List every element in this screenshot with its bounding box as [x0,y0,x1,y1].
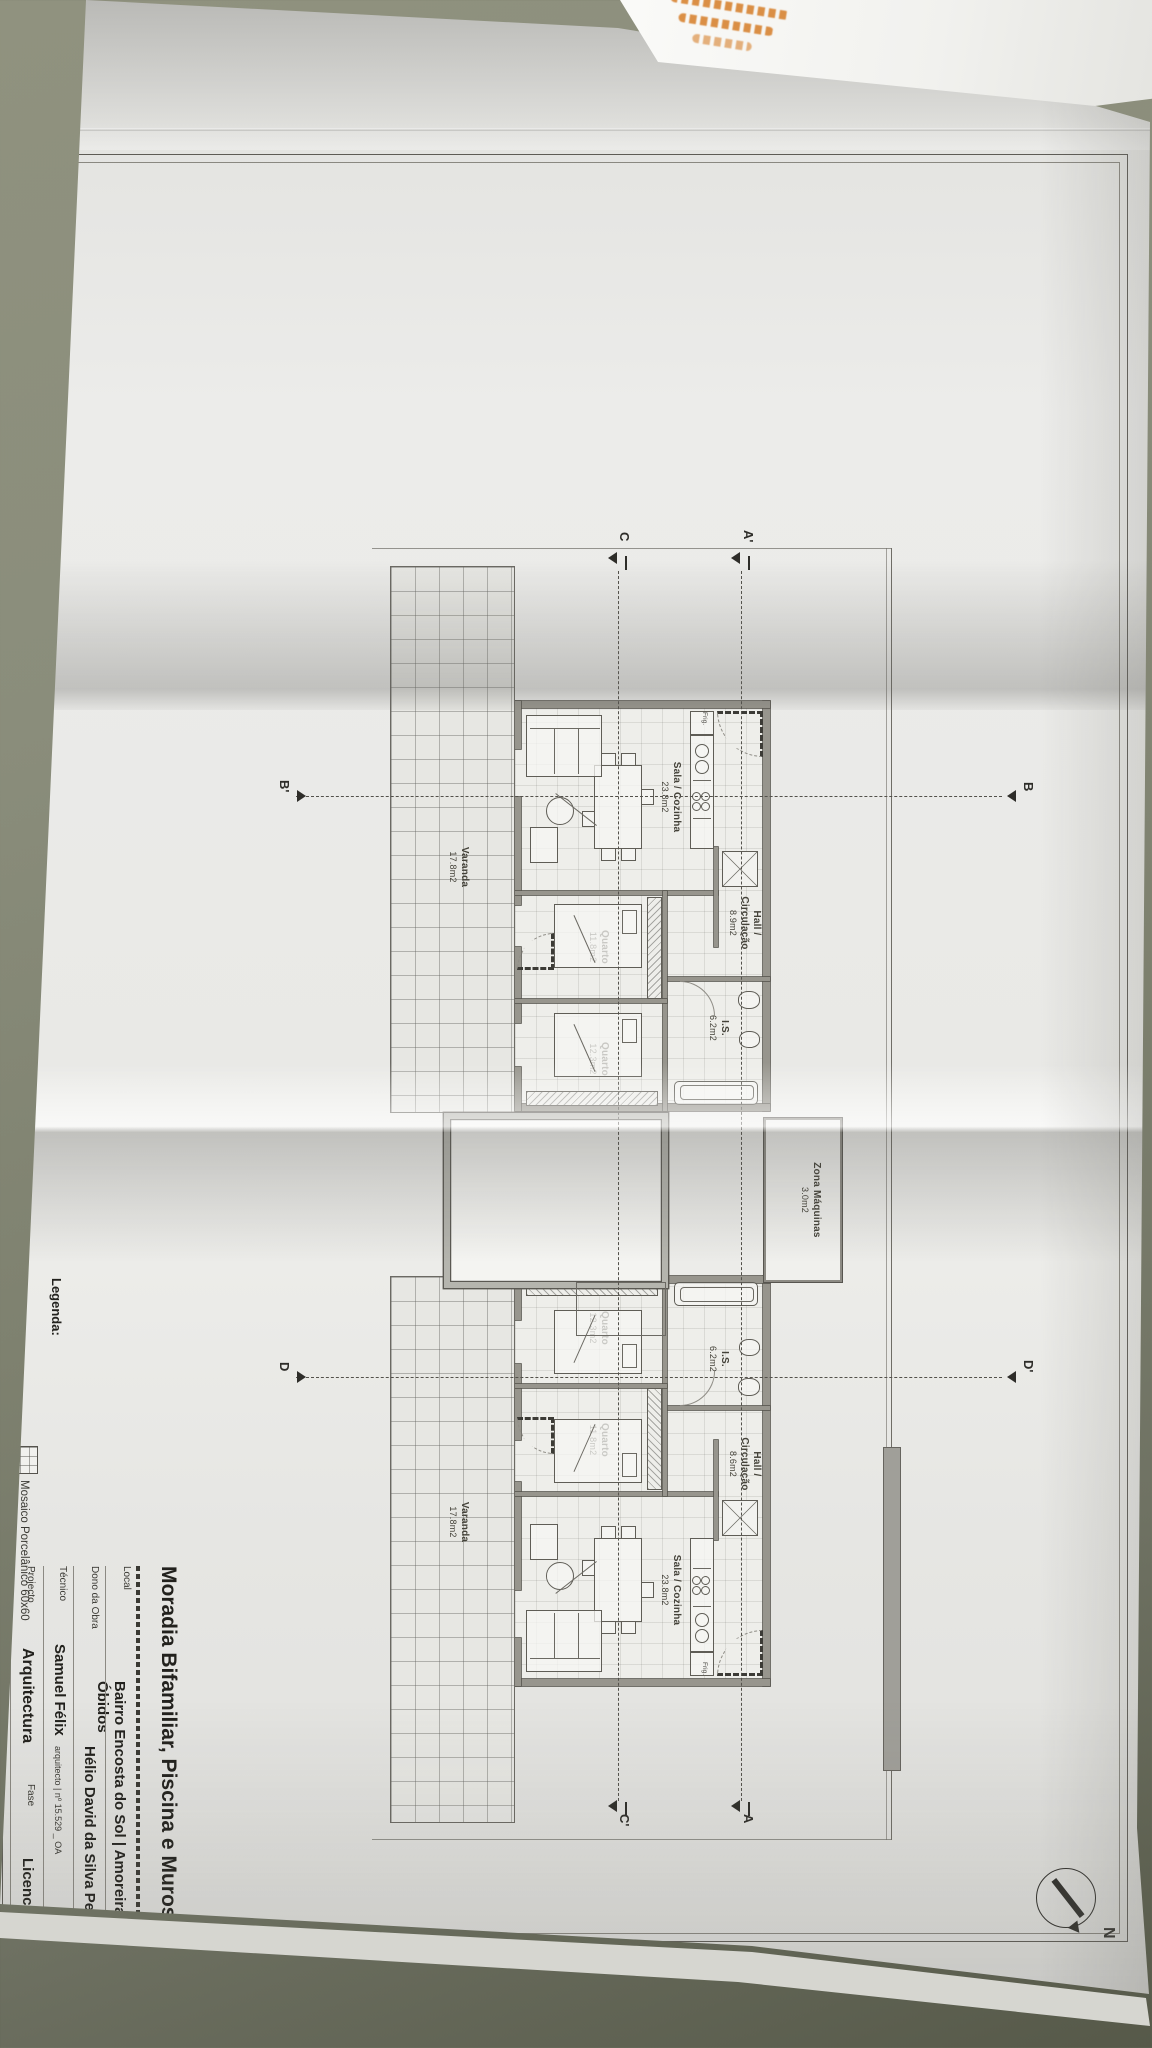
section-marker-d-end: D [277,1362,292,1371]
fridge-label: Frig. [701,1662,708,1675]
round-chair [546,1562,574,1590]
wardrobe [647,897,662,999]
room-label-hall: Hall / Circulação 8.9m2 [728,877,762,969]
hall-area: 8.9m2 [728,877,739,969]
project-title: Moradia Bifamiliar, Piscina e Muros [156,1566,180,2026]
north-arrow: N [1036,1868,1096,1928]
varanda-area: 17.8m2 [448,1477,459,1567]
north-label: N [1099,1927,1117,1939]
hall-name-1: Hall / [751,910,762,935]
sofa [526,1610,602,1672]
sala-name: Sala / Cozinha [671,1555,682,1626]
section-line-d [296,1377,1002,1378]
dwelling-unit-right: Hall / Circulação 8.6m2 I.S. 6.2m2 Sala … [515,1276,770,1686]
folded-drawing-sheet: Hall / Circulação 8.9m2 I.S. 6.2m2 Sala … [0,0,1152,2048]
section-marker-b-start: B [1021,782,1036,791]
orange-handwriting [678,13,774,37]
zona-area: 3.0m2 [800,1120,811,1280]
section-marker-c-start: C [617,532,632,541]
room-label-zona: Zona Máquinas 3.0m2 [800,1120,822,1280]
room-label-varanda: Varanda 17.8m2 [448,822,470,912]
hall-closet [722,1500,758,1536]
bed [554,1013,642,1077]
quarto1-door-arc [517,933,554,970]
room-label-varanda: Varanda 17.8m2 [448,1477,470,1567]
sofa [526,715,602,777]
varanda-left: Varanda 17.8m2 [390,566,515,1113]
section-line-b [296,796,1002,797]
muro-wall [884,1448,900,1770]
dwelling-unit-left: Hall / Circulação 8.9m2 I.S. 6.2m2 Sala … [515,701,770,1111]
legend-tile-swatch [10,1446,38,1474]
zona-name: Zona Máquinas [811,1162,822,1237]
technician-value: Samuel Félix [51,1644,68,1736]
zona-maquinas-room: Zona Máquinas 3.0m2 [764,1118,842,1282]
tv-unit [530,827,558,863]
section-line-c [618,571,619,1801]
quarto1-door-arc [517,1417,554,1454]
section-marker-a-start: A' [741,530,756,542]
site-boundary-right [372,1839,892,1840]
section-marker-d-start: D' [1021,1360,1036,1372]
chair [601,848,616,861]
round-chair [546,797,574,825]
hall-area: 8.6m2 [728,1418,739,1510]
kitchen-counter [690,1538,714,1652]
room-label-sala: Sala / Cozinha 23.8m2 [660,1542,682,1638]
is-door-arc [680,981,715,1016]
sala-area: 23.8m2 [660,1542,671,1638]
entrance-door-arc [717,1630,763,1676]
chair [621,753,636,766]
chair [641,1582,654,1598]
section-marker-b-end: B' [277,780,292,792]
bed [554,904,642,968]
phase-label: Fase [25,1784,36,1806]
room-label-sala: Sala / Cozinha 23.8m2 [660,749,682,845]
site-boundary-left [372,548,892,549]
title-divider-zigzag [136,1566,140,1958]
bathtub [674,1081,758,1105]
divider [73,1566,74,2011]
sala-area: 23.8m2 [660,749,671,845]
swimming-pool [444,1113,668,1288]
hall-name-1: Hall / [751,1451,762,1476]
chair [641,789,654,805]
technician-label: Técnico [57,1566,68,1601]
local-label: Local [121,1566,132,1590]
fridge-label: Frig. [701,712,708,725]
chair [601,753,616,766]
varanda-name: Varanda [459,847,470,887]
photo-of-floor-plan: { "sheet": { "title_block": { "title": "… [0,0,1152,2048]
bidet [739,1031,760,1048]
wardrobe [647,1388,662,1490]
north-arrow-bar [1051,1878,1084,1918]
chair [621,1621,636,1634]
section-line-a [741,571,742,1801]
phase-value: Licenciamento [19,1858,36,1963]
is-name: I.S. [719,1351,730,1367]
varanda-name: Varanda [459,1502,470,1542]
chair [601,1621,616,1634]
owner-label: Dono da Obra [89,1566,100,1629]
hall-closet [722,851,758,887]
chair [601,1526,616,1539]
chair [621,848,636,861]
bed [554,1419,642,1483]
entrance-door-arc [717,711,763,757]
technician-suffix: arquitecto | nº 15.529 _ OA [53,1746,63,1854]
room-label-hall: Hall / Circulação 8.6m2 [728,1418,762,1510]
chair [621,1526,636,1539]
divider [43,1566,44,2011]
drawing-sheet-content: Hall / Circulação 8.9m2 I.S. 6.2m2 Sala … [0,116,1140,1976]
is-name: I.S. [719,1020,730,1036]
exterior-stairs [576,1282,666,1336]
varanda-right: Varanda 17.8m2 [390,1276,515,1823]
varanda-area: 17.8m2 [448,822,459,912]
bidet [739,1339,760,1356]
legend-title: Legenda: [49,1278,64,1336]
sala-name: Sala / Cozinha [671,762,682,833]
bathtub [674,1282,758,1306]
tv-unit [530,1524,558,1560]
wardrobe [526,1091,658,1106]
orange-handwriting [692,33,753,51]
project-label: Projecto [25,1566,36,1603]
project-value: Arquitectura [18,1648,36,1743]
kitchen-counter [690,735,714,849]
